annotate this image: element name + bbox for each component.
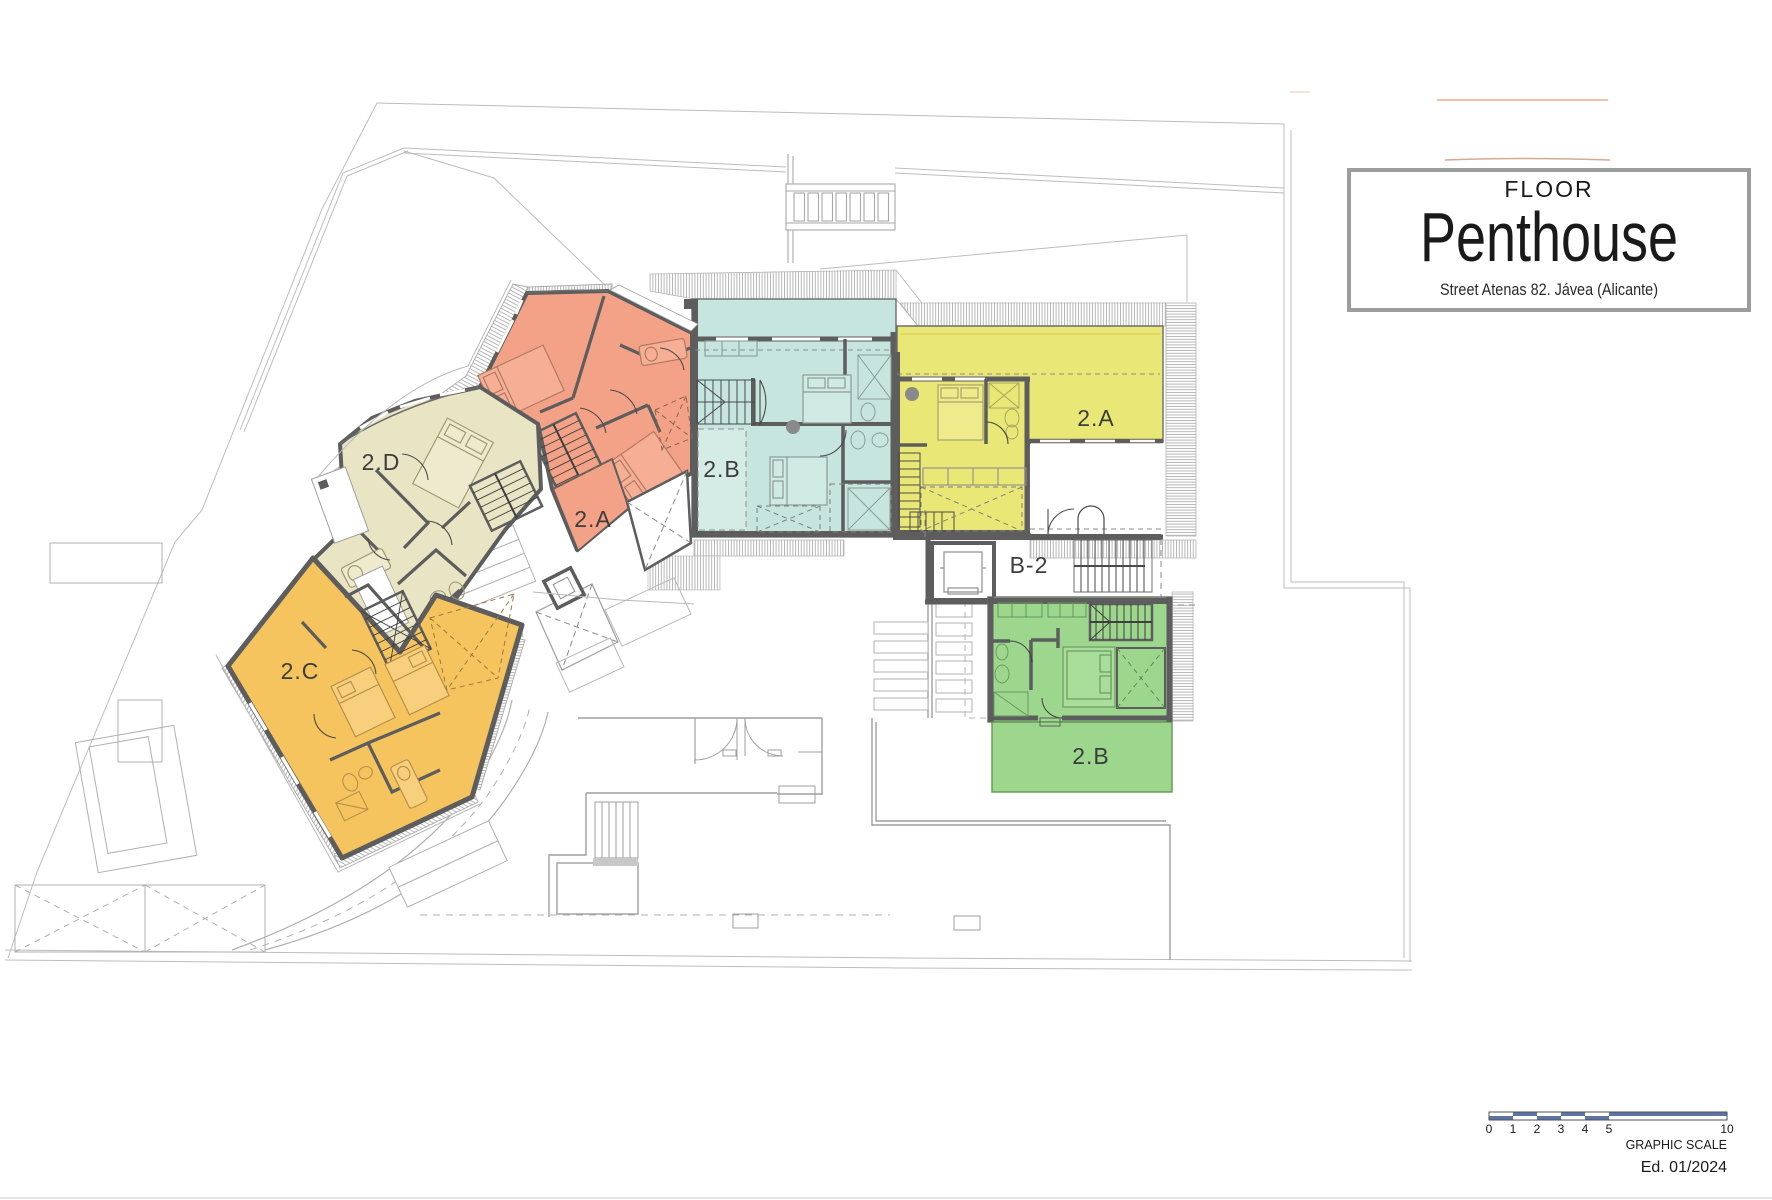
svg-text:Street Atenas 82. Jávea (Alica: Street Atenas 82. Jávea (Alicante)	[1440, 280, 1658, 299]
svg-text:5: 5	[1606, 1122, 1613, 1136]
svg-text:2.B: 2.B	[1072, 743, 1110, 769]
svg-text:Ed. 01/2024: Ed. 01/2024	[1641, 1159, 1727, 1176]
svg-text:0: 0	[1486, 1122, 1493, 1136]
svg-text:1: 1	[1510, 1122, 1517, 1136]
svg-text:4: 4	[1582, 1122, 1589, 1136]
svg-text:2.C: 2.C	[281, 658, 320, 684]
svg-text:2.B: 2.B	[703, 456, 741, 482]
svg-text:2.A: 2.A	[1077, 405, 1115, 431]
svg-text:2: 2	[1534, 1122, 1541, 1136]
svg-text:GRAPHIC SCALE: GRAPHIC SCALE	[1626, 1138, 1727, 1152]
svg-text:3: 3	[1558, 1122, 1565, 1136]
svg-text:10: 10	[1720, 1122, 1734, 1136]
svg-text:2.D: 2.D	[362, 449, 401, 475]
svg-text:2.A: 2.A	[574, 506, 612, 532]
svg-text:Penthouse: Penthouse	[1420, 198, 1678, 276]
svg-text:B-2: B-2	[1010, 552, 1049, 578]
